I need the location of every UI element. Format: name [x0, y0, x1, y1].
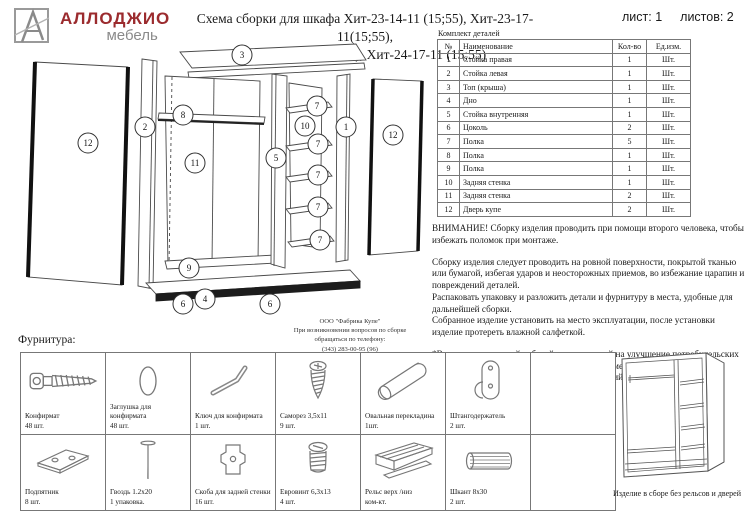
col-qty: Кол-во — [613, 40, 647, 54]
callout-7-4: 7 — [316, 202, 321, 212]
confirmat-screw-icon — [21, 353, 105, 406]
callout-4: 4 — [203, 294, 208, 304]
hardware-qty: 48 шт. — [110, 422, 188, 431]
hardware-name: Ключ для конфирмата — [195, 412, 273, 421]
brand-logo-icon — [12, 6, 52, 46]
warning-text: ВНИМАНИЕ! Сборку изделия проводить при п… — [432, 223, 746, 247]
contact-note-line2: обращаться по телефону: — [268, 335, 432, 344]
hardware-name: Конфирмат — [25, 412, 103, 421]
note-unpack: Распаковать упаковку и разложить детали … — [432, 292, 746, 316]
hardware-cell-rodholder: Штангодержатель2 шт. — [446, 353, 531, 435]
manufacturer-name: ООО "Фабрика Купе" — [268, 317, 432, 326]
hardware-qty: 2 шт. — [450, 498, 528, 507]
table-row: 8Полка1Шт. — [438, 148, 691, 162]
hardware-name: Скоба для задней стенки — [195, 488, 273, 497]
table-row: 7Полка5Шт. — [438, 135, 691, 149]
parts-table-title: Комплект деталей — [438, 29, 500, 38]
brand-logo: АЛЛОДЖИО мебель — [12, 6, 170, 46]
table-row: 2Стойка левая1Шт. — [438, 67, 691, 81]
brand-name: АЛЛОДЖИО — [60, 10, 170, 28]
callout-7-2: 7 — [316, 139, 321, 149]
hardware-name: Рельс верх /низ — [365, 488, 443, 497]
manufacturer-contact: ООО "Фабрика Купе" При возникновении воп… — [268, 317, 432, 354]
hardware-cell-hexkey: Ключ для конфирмата1 шт. — [191, 353, 276, 435]
foot-pad-icon — [21, 435, 105, 484]
table-row: 10Задняя стенка1Шт. — [438, 175, 691, 189]
hardware-qty: 2 шт. — [450, 422, 528, 431]
hardware-name: Саморез 3,5х11 — [280, 412, 358, 421]
hardware-qty: 8 шт. — [25, 498, 103, 507]
callout-6-left: 6 — [181, 299, 186, 309]
oval-rod-icon — [361, 353, 445, 406]
col-num: № — [438, 40, 460, 54]
callout-9: 9 — [187, 263, 192, 273]
hardware-qty: 1 шт. — [195, 422, 273, 431]
table-row: 6Цоколь2Шт. — [438, 121, 691, 135]
hardware-qty: 1 упаковка. — [110, 498, 188, 507]
note-install: Собранное изделие установить на место эк… — [432, 315, 746, 339]
nail-icon — [106, 435, 190, 484]
hex-key-icon — [191, 353, 275, 406]
hardware-name: Подпятник — [25, 488, 103, 497]
table-row: 9Полка1Шт. — [438, 162, 691, 176]
hardware-cell-nail: Гвоздь 1.2х201 упаковка. — [106, 435, 191, 511]
table-row: 5Стойка внутренняя1Шт. — [438, 107, 691, 121]
callout-12-left: 12 — [84, 138, 93, 148]
sheet-number: лист: 1 — [622, 10, 662, 24]
col-unit: Ед.изм. — [647, 40, 691, 54]
exploded-assembly-diagram: 12 2 3 8 11 9 6 4 6 5 10 7 7 7 7 7 1 12 — [18, 42, 430, 320]
sheet-info: лист: 1 листов: 2 — [622, 10, 734, 24]
assembly-instruction-sheet: АЛЛОДЖИО мебель Схема сборки для шкафа Х… — [0, 0, 748, 527]
hardware-cell-bracket: Скоба для задней стенки16 шт. — [191, 435, 276, 511]
hardware-name: Овальная перекладина — [365, 412, 443, 421]
callout-6-right: 6 — [268, 299, 273, 309]
hardware-name: Гвоздь 1.2х20 — [110, 488, 188, 497]
back-panel-bracket-icon — [191, 435, 275, 484]
confirmat-plug-icon — [106, 353, 190, 406]
callout-12-right: 12 — [389, 130, 398, 140]
note-surface: Сборку изделия следует проводить на ровн… — [432, 257, 746, 292]
hardware-name: Штангодержатель — [450, 412, 528, 421]
screw-icon — [276, 353, 360, 406]
callout-3: 3 — [240, 50, 245, 60]
callout-11: 11 — [191, 158, 200, 168]
hardware-cell-empty-2 — [531, 435, 616, 511]
parts-table-header: № Наименование Кол-во Ед.изм. — [438, 40, 691, 54]
hardware-qty: ком-кт. — [365, 498, 443, 507]
hardware-section-title: Фурнитура: — [18, 334, 76, 346]
table-row: 12Дверь купе2Шт. — [438, 203, 691, 217]
hardware-cell-plug: Заглушка для конфирмата48 шт. — [106, 353, 191, 435]
table-row: 3Топ (крыша)1Шт. — [438, 80, 691, 94]
callout-7-3: 7 — [316, 170, 321, 180]
callout-8: 8 — [181, 110, 186, 120]
hardware-cell-confirmat: Конфирмат48 шт. — [21, 353, 106, 435]
callout-7-5: 7 — [318, 235, 323, 245]
hardware-cell-rail: Рельс верх /низком-кт. — [361, 435, 446, 511]
hardware-table: Конфирмат48 шт. Заглушка для конфирмата4… — [20, 352, 616, 511]
callout-7-1: 7 — [315, 101, 320, 111]
hardware-qty: 16 шт. — [195, 498, 273, 507]
callout-2: 2 — [143, 122, 148, 132]
assembled-caption: Изделие в сборе без рельсов и дверей — [606, 489, 748, 498]
dowel-icon — [446, 435, 530, 484]
hardware-cell-euroscrew: Евровинт 6,3х134 шт. — [276, 435, 361, 511]
assembled-wardrobe-drawing — [616, 350, 748, 488]
hardware-qty: 9 шт. — [280, 422, 358, 431]
callout-5: 5 — [274, 153, 279, 163]
hardware-cell-dowel: Шкант 8х302 шт. — [446, 435, 531, 511]
table-row: 1Стойка правая1Шт. — [438, 53, 691, 67]
parts-table: № Наименование Кол-во Ед.изм. 1Стойка пр… — [437, 39, 691, 217]
euro-screw-icon — [276, 435, 360, 484]
col-name: Наименование — [460, 40, 613, 54]
hardware-qty: 48 шт. — [25, 422, 103, 431]
hardware-cell-footpad: Подпятник8 шт. — [21, 435, 106, 511]
hardware-name: Шкант 8х30 — [450, 488, 528, 497]
rail-icon — [361, 435, 445, 484]
hardware-qty: 4 шт. — [280, 498, 358, 507]
sheets-total: листов: 2 — [680, 10, 734, 24]
hardware-cell-rod: Овальная перекладина1шт. — [361, 353, 446, 435]
callout-10: 10 — [301, 121, 311, 131]
table-row: 4Дно1Шт. — [438, 94, 691, 108]
callout-1: 1 — [344, 122, 349, 132]
hardware-cell-screw: Саморез 3,5х119 шт. — [276, 353, 361, 435]
contact-note-line1: При возникновении вопросов по сборке — [268, 326, 432, 335]
hardware-name: Евровинт 6,3х13 — [280, 488, 358, 497]
hardware-name: Заглушка для конфирмата — [110, 403, 188, 422]
rod-holder-icon — [446, 353, 530, 406]
table-row: 11Задняя стенка2Шт. — [438, 189, 691, 203]
hardware-qty: 1шт. — [365, 422, 443, 431]
hardware-cell-empty-1 — [531, 353, 616, 435]
